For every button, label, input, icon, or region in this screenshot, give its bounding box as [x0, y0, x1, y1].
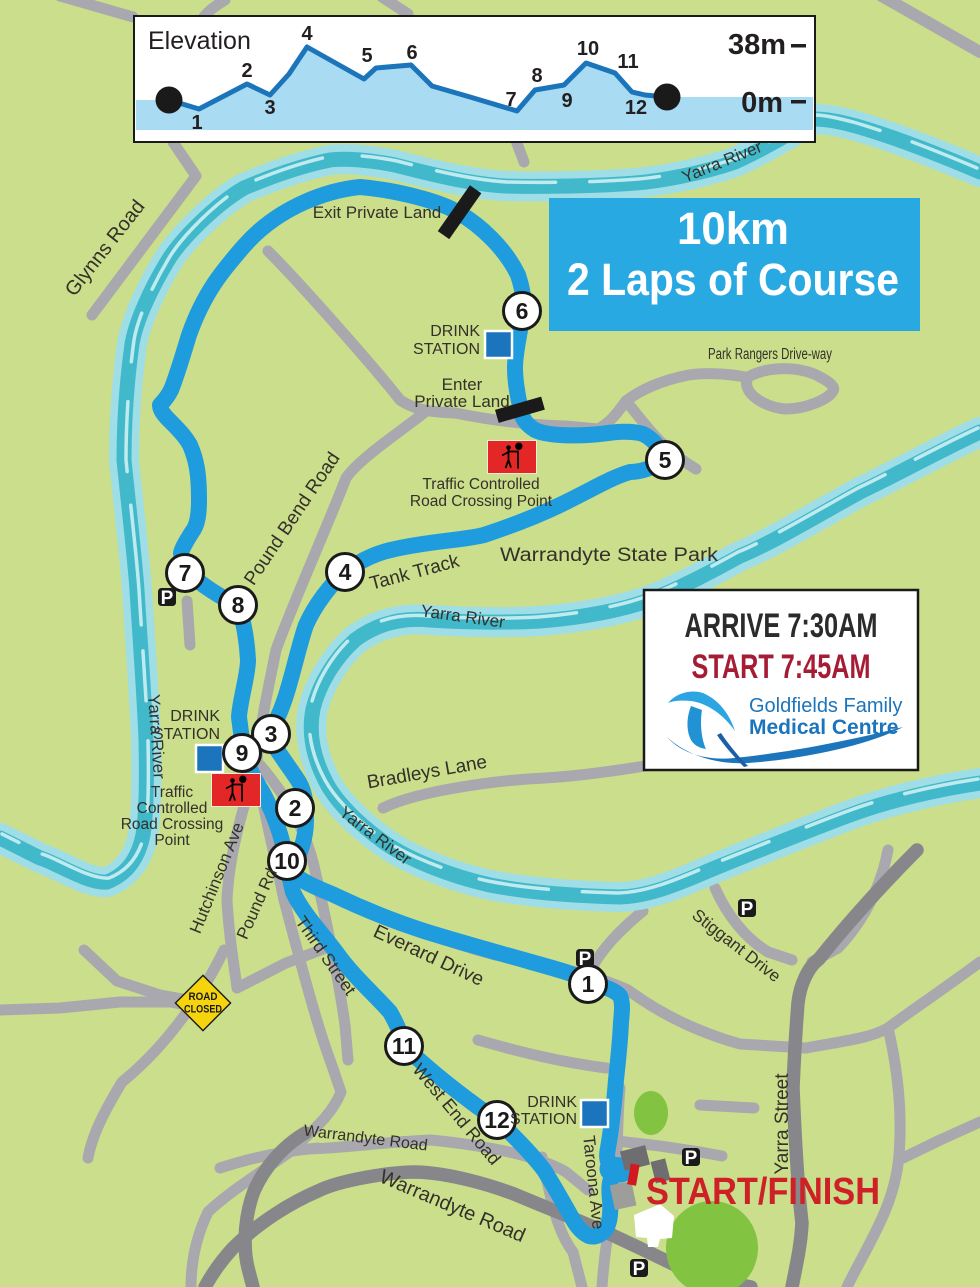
- svg-text:3: 3: [264, 97, 275, 119]
- svg-text:8: 8: [531, 65, 542, 87]
- svg-text:10km: 10km: [677, 203, 789, 254]
- svg-text:Controlled: Controlled: [137, 800, 208, 817]
- svg-text:5: 5: [361, 45, 372, 67]
- svg-text:7: 7: [179, 560, 192, 586]
- svg-text:2 Laps of Course: 2 Laps of Course: [567, 254, 899, 305]
- svg-text:STATION: STATION: [153, 726, 220, 743]
- svg-text:START/FINISH: START/FINISH: [646, 1171, 880, 1213]
- svg-text:Traffic Controlled: Traffic Controlled: [422, 476, 539, 493]
- svg-text:Medical Centre: Medical Centre: [749, 716, 898, 739]
- svg-text:Yarra Street: Yarra Street: [772, 1073, 793, 1175]
- svg-text:12: 12: [625, 97, 647, 119]
- svg-text:ARRIVE 7:30AM: ARRIVE 7:30AM: [685, 607, 878, 645]
- svg-text:5: 5: [659, 447, 672, 473]
- svg-text:6: 6: [406, 42, 417, 64]
- svg-text:DRINK: DRINK: [527, 1094, 577, 1111]
- svg-text:6: 6: [516, 298, 529, 324]
- svg-text:11: 11: [617, 51, 638, 73]
- svg-text:Road Crossing Point: Road Crossing Point: [410, 493, 553, 510]
- svg-text:10: 10: [274, 848, 300, 874]
- svg-text:DRINK: DRINK: [430, 323, 480, 340]
- svg-text:Warrandyte State Park: Warrandyte State Park: [500, 545, 719, 566]
- svg-text:8: 8: [232, 592, 245, 618]
- svg-text:1: 1: [191, 112, 202, 134]
- svg-text:0m: 0m: [741, 87, 783, 119]
- svg-text:CLOSED: CLOSED: [184, 1004, 222, 1016]
- svg-text:9: 9: [561, 90, 572, 112]
- svg-text:Park Rangers Drive-way: Park Rangers Drive-way: [708, 346, 832, 363]
- svg-text:Road Crossing: Road Crossing: [121, 816, 224, 833]
- svg-text:Elevation: Elevation: [148, 27, 251, 55]
- svg-text:Goldfields Family: Goldfields Family: [749, 695, 902, 717]
- svg-text:P: P: [685, 1148, 698, 1169]
- svg-text:10: 10: [577, 38, 599, 60]
- svg-text:Traffic: Traffic: [151, 784, 193, 801]
- svg-text:STATION: STATION: [510, 1111, 577, 1128]
- svg-text:1: 1: [582, 971, 595, 997]
- svg-text:Exit Private Land: Exit Private Land: [313, 203, 442, 222]
- svg-text:Private Land: Private Land: [414, 392, 509, 411]
- svg-text:ROAD: ROAD: [189, 991, 218, 1003]
- svg-text:P: P: [741, 899, 754, 920]
- svg-text:4: 4: [339, 559, 352, 585]
- svg-text:2: 2: [241, 60, 252, 82]
- svg-text:START 7:45AM: START 7:45AM: [692, 648, 871, 686]
- svg-text:38m: 38m: [728, 29, 786, 61]
- svg-text:12: 12: [484, 1107, 510, 1133]
- svg-text:4: 4: [301, 23, 313, 45]
- svg-text:STATION: STATION: [413, 341, 480, 358]
- svg-text:P: P: [633, 1259, 646, 1280]
- svg-text:2: 2: [289, 795, 302, 821]
- svg-text:DRINK: DRINK: [170, 708, 220, 725]
- svg-text:9: 9: [236, 740, 249, 766]
- svg-text:P: P: [161, 588, 174, 609]
- svg-text:Point: Point: [154, 832, 190, 849]
- svg-text:7: 7: [505, 89, 516, 111]
- svg-text:3: 3: [265, 721, 278, 747]
- svg-text:11: 11: [392, 1033, 417, 1059]
